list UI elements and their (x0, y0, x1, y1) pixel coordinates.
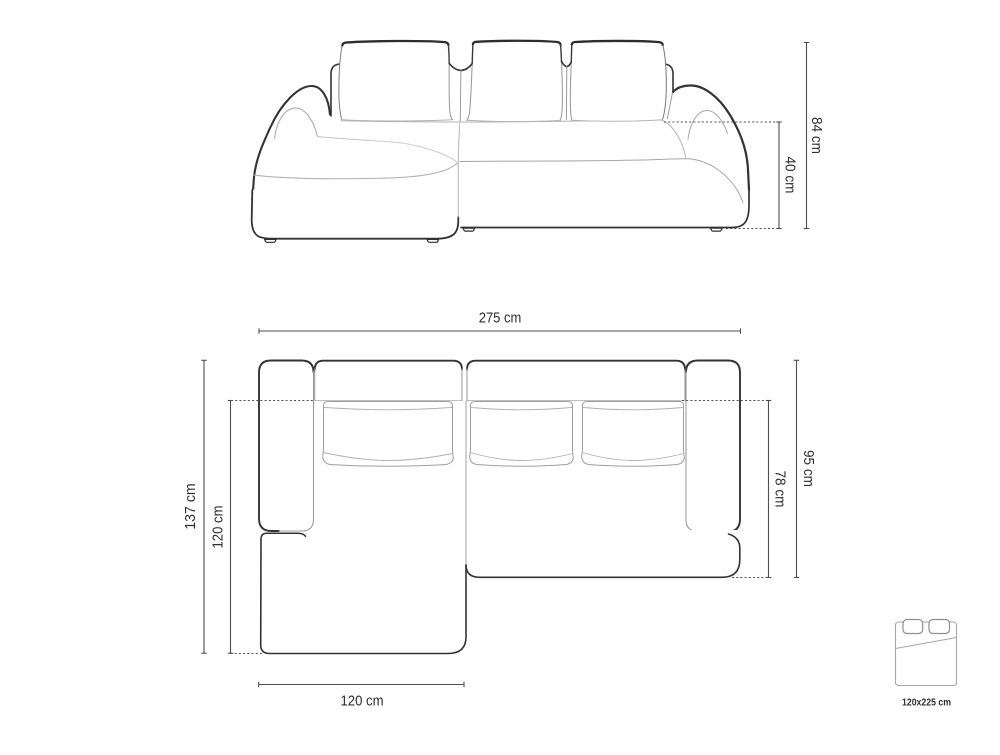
svg-text:120 cm: 120 cm (341, 693, 384, 710)
svg-text:40 cm: 40 cm (782, 157, 799, 194)
svg-text:120x225 cm: 120x225 cm (902, 698, 951, 709)
svg-text:120 cm: 120 cm (210, 506, 227, 549)
svg-text:275 cm: 275 cm (479, 309, 522, 326)
svg-text:78 cm: 78 cm (772, 471, 789, 508)
svg-text:84 cm: 84 cm (808, 117, 825, 154)
svg-text:137 cm: 137 cm (182, 483, 199, 530)
svg-text:95 cm: 95 cm (800, 450, 817, 487)
